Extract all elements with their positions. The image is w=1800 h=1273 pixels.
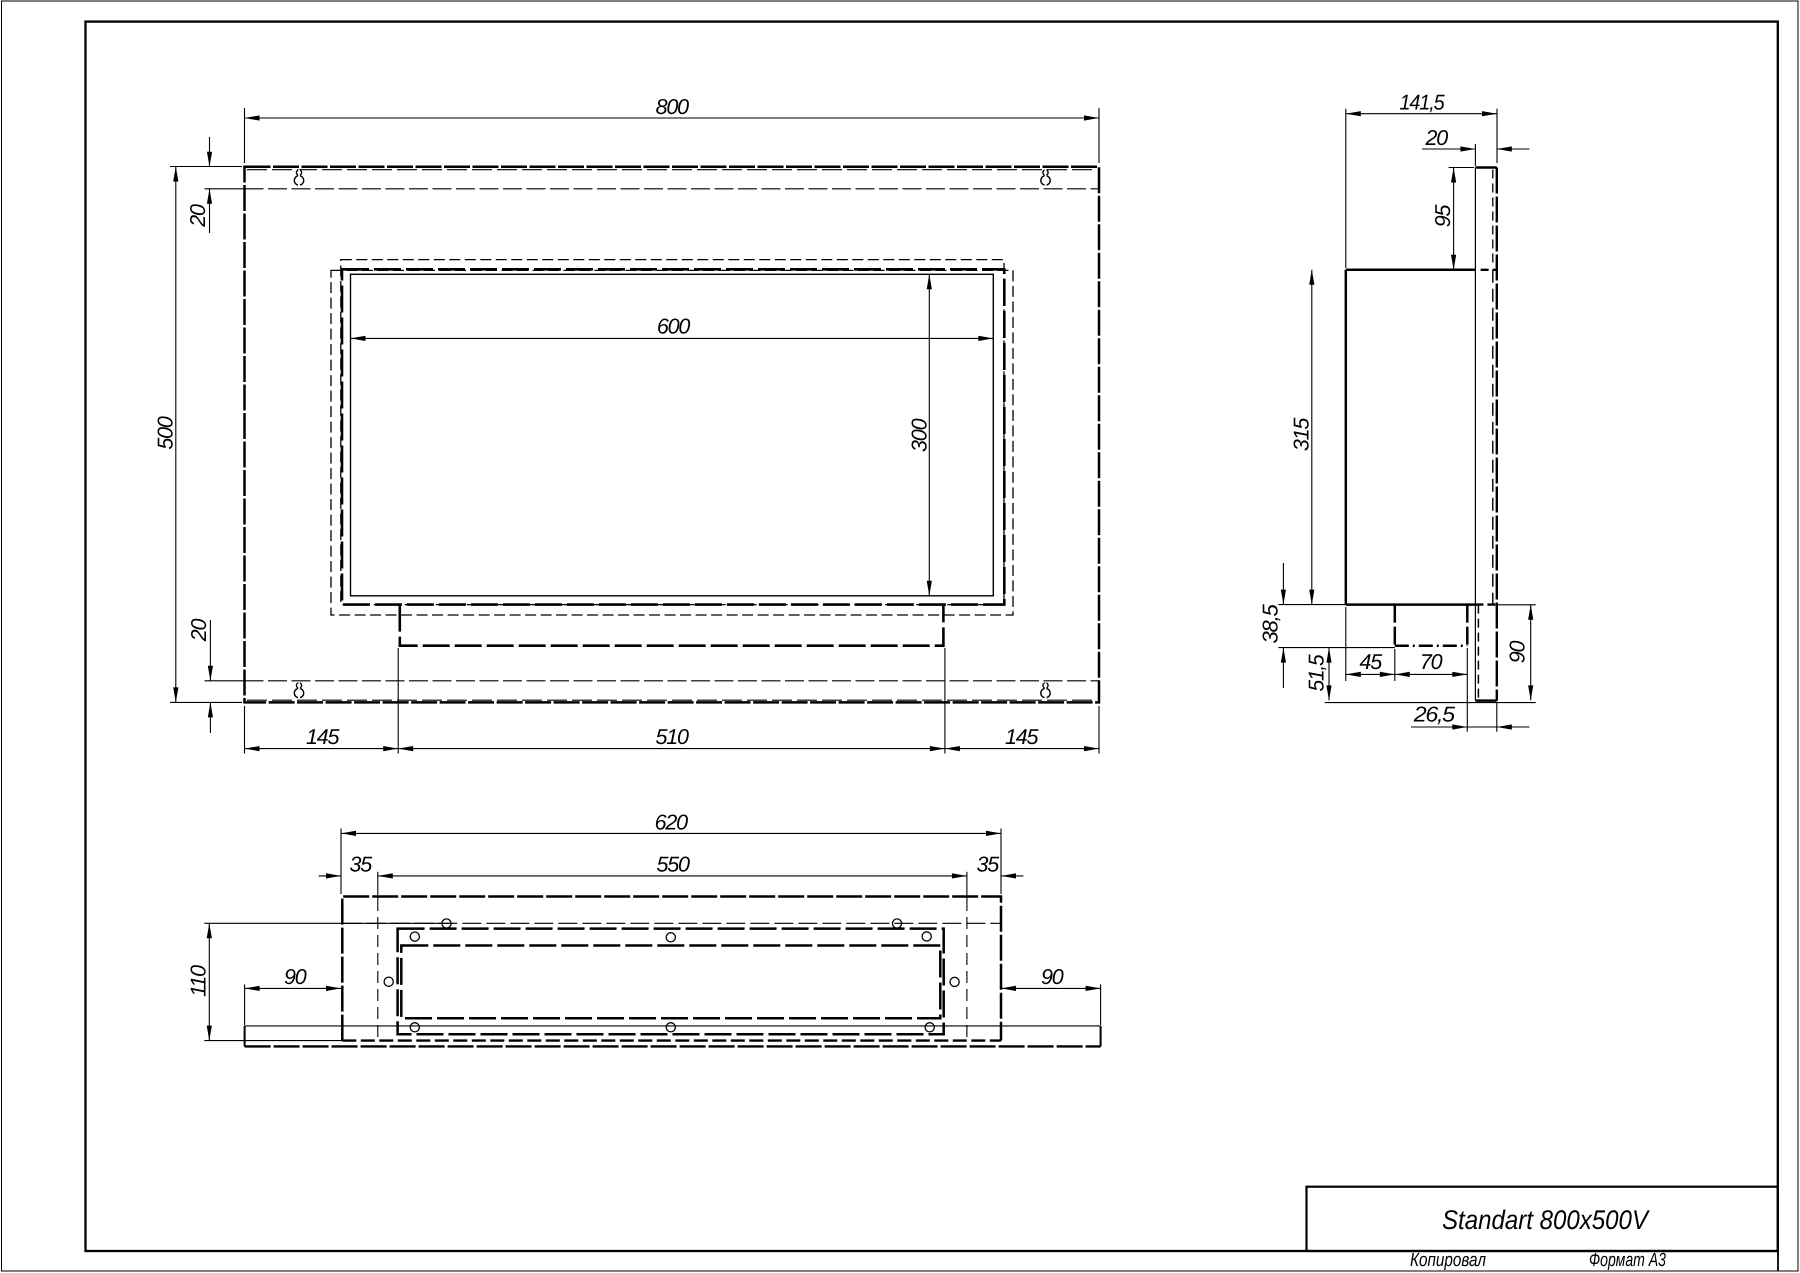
svg-text:51,5: 51,5 — [1304, 653, 1328, 691]
svg-text:600: 600 — [657, 315, 691, 339]
svg-text:500: 500 — [153, 416, 177, 450]
svg-text:35: 35 — [349, 852, 373, 876]
svg-text:20: 20 — [1425, 126, 1449, 150]
svg-text:90: 90 — [1041, 965, 1064, 989]
svg-text:20: 20 — [187, 619, 211, 643]
svg-text:800: 800 — [656, 95, 690, 119]
svg-text:300: 300 — [907, 418, 931, 452]
svg-text:110: 110 — [187, 965, 211, 997]
svg-text:95: 95 — [1431, 204, 1455, 228]
svg-text:45: 45 — [1360, 650, 1384, 674]
svg-text:Standart 800x500V: Standart 800x500V — [1442, 1205, 1651, 1235]
svg-text:90: 90 — [1505, 641, 1529, 664]
svg-text:38,5: 38,5 — [1259, 603, 1283, 643]
svg-text:315: 315 — [1289, 417, 1313, 452]
svg-text:510: 510 — [655, 725, 689, 749]
svg-text:26,5: 26,5 — [1413, 703, 1456, 727]
svg-text:145: 145 — [1005, 725, 1040, 749]
svg-text:145: 145 — [306, 725, 341, 749]
svg-text:141,5: 141,5 — [1400, 91, 1446, 115]
svg-text:620: 620 — [655, 811, 689, 835]
svg-text:90: 90 — [284, 965, 307, 989]
svg-text:Копировал: Копировал — [1410, 1250, 1486, 1271]
svg-text:550: 550 — [656, 852, 690, 876]
svg-text:70: 70 — [1420, 650, 1443, 674]
svg-text:35: 35 — [977, 852, 1001, 876]
svg-text:20: 20 — [186, 204, 210, 228]
svg-text:Формат А3: Формат А3 — [1589, 1250, 1666, 1271]
